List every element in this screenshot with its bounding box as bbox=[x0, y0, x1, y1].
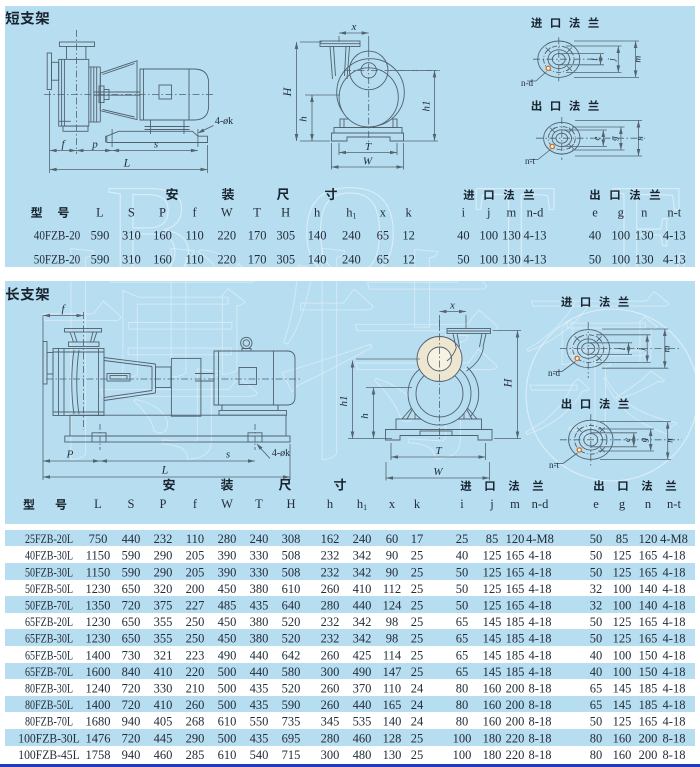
svg-text:50: 50 bbox=[590, 615, 603, 629]
svg-text:120: 120 bbox=[506, 532, 525, 546]
svg-text:P: P bbox=[159, 206, 166, 220]
svg-text:110: 110 bbox=[185, 253, 203, 267]
svg-text:145: 145 bbox=[613, 698, 632, 712]
svg-text:500: 500 bbox=[218, 665, 237, 679]
svg-text:165: 165 bbox=[639, 615, 658, 629]
svg-text:4-18: 4-18 bbox=[663, 665, 686, 679]
svg-text:n-d: n-d bbox=[532, 497, 549, 511]
svg-text:170: 170 bbox=[248, 229, 267, 243]
svg-text:425: 425 bbox=[353, 648, 372, 662]
svg-text:410: 410 bbox=[154, 665, 173, 679]
svg-text:80: 80 bbox=[590, 731, 603, 745]
svg-text:s: s bbox=[154, 139, 158, 151]
svg-text:n-t: n-t bbox=[667, 206, 681, 220]
svg-text:40FZB-20: 40FZB-20 bbox=[34, 229, 81, 243]
svg-text:f: f bbox=[193, 497, 198, 511]
svg-text:380: 380 bbox=[250, 615, 269, 629]
svg-text:50: 50 bbox=[590, 715, 603, 729]
svg-text:940: 940 bbox=[122, 748, 141, 762]
svg-text:210: 210 bbox=[186, 682, 205, 696]
svg-text:W: W bbox=[221, 206, 233, 220]
svg-text:520: 520 bbox=[282, 682, 301, 696]
svg-text:100: 100 bbox=[613, 648, 632, 662]
svg-text:j: j bbox=[636, 347, 646, 351]
svg-text:k: k bbox=[414, 497, 421, 511]
svg-text:S: S bbox=[128, 497, 135, 511]
svg-text:550: 550 bbox=[250, 715, 269, 729]
svg-text:4-18: 4-18 bbox=[529, 648, 552, 662]
svg-text:124: 124 bbox=[383, 599, 403, 613]
svg-text:200: 200 bbox=[639, 748, 658, 762]
svg-text:500: 500 bbox=[218, 682, 237, 696]
svg-text:L: L bbox=[161, 463, 169, 477]
svg-text:940: 940 bbox=[122, 715, 141, 729]
svg-text:4-18: 4-18 bbox=[663, 715, 686, 729]
svg-text:140: 140 bbox=[308, 253, 327, 267]
svg-text:440: 440 bbox=[250, 648, 269, 662]
svg-text:185: 185 bbox=[506, 665, 525, 679]
svg-text:185: 185 bbox=[639, 698, 658, 712]
svg-text:405: 405 bbox=[154, 715, 173, 729]
svg-text:200: 200 bbox=[506, 715, 525, 729]
svg-text:114: 114 bbox=[383, 648, 402, 662]
svg-text:m: m bbox=[507, 206, 517, 220]
svg-text:125: 125 bbox=[613, 549, 632, 563]
svg-text:40: 40 bbox=[590, 648, 603, 662]
svg-text:50: 50 bbox=[456, 582, 469, 596]
svg-text:65FZB-20L: 65FZB-20L bbox=[25, 615, 73, 629]
svg-text:1350: 1350 bbox=[86, 599, 111, 613]
svg-text:f: f bbox=[61, 303, 66, 315]
svg-text:610: 610 bbox=[218, 748, 237, 762]
svg-text:160: 160 bbox=[483, 682, 502, 696]
svg-text:x: x bbox=[389, 497, 396, 511]
svg-text:720: 720 bbox=[122, 698, 141, 712]
svg-text:25: 25 bbox=[411, 665, 424, 679]
svg-text:355: 355 bbox=[154, 615, 173, 629]
svg-text:160: 160 bbox=[483, 698, 502, 712]
svg-text:24: 24 bbox=[411, 715, 424, 729]
svg-text:g: g bbox=[639, 437, 649, 442]
svg-text:240: 240 bbox=[342, 229, 361, 243]
svg-text:280: 280 bbox=[321, 599, 340, 613]
svg-text:65: 65 bbox=[456, 665, 469, 679]
svg-text:130: 130 bbox=[502, 253, 521, 267]
svg-text:25: 25 bbox=[411, 582, 424, 596]
svg-text:1230: 1230 bbox=[86, 615, 111, 629]
svg-text:8-18: 8-18 bbox=[529, 682, 552, 696]
svg-text:x: x bbox=[449, 300, 455, 312]
svg-text:4-18: 4-18 bbox=[663, 615, 686, 629]
svg-text:h: h bbox=[359, 413, 371, 419]
svg-text:200: 200 bbox=[506, 698, 525, 712]
svg-text:695: 695 bbox=[282, 731, 301, 745]
svg-text:17: 17 bbox=[411, 532, 424, 546]
svg-text:260: 260 bbox=[321, 582, 340, 596]
svg-text:320: 320 bbox=[154, 582, 173, 596]
svg-text:330: 330 bbox=[154, 682, 173, 696]
svg-text:440: 440 bbox=[353, 698, 372, 712]
svg-text:p: p bbox=[91, 139, 98, 151]
svg-text:40: 40 bbox=[456, 549, 469, 563]
svg-text:65: 65 bbox=[590, 698, 603, 712]
svg-text:m: m bbox=[510, 497, 520, 511]
svg-text:100: 100 bbox=[613, 665, 632, 679]
svg-text:80FZB-50L: 80FZB-50L bbox=[25, 698, 73, 712]
svg-text:40FZB-30L: 40FZB-30L bbox=[25, 549, 73, 563]
svg-text:145: 145 bbox=[483, 665, 502, 679]
svg-text:650: 650 bbox=[122, 632, 141, 646]
svg-text:1600: 1600 bbox=[86, 665, 111, 679]
svg-text:520: 520 bbox=[282, 615, 301, 629]
svg-text:125: 125 bbox=[483, 599, 502, 613]
svg-text:4-øk: 4-øk bbox=[215, 116, 233, 127]
svg-text:590: 590 bbox=[122, 549, 141, 563]
svg-text:k: k bbox=[405, 206, 412, 220]
svg-text:128: 128 bbox=[383, 731, 402, 745]
svg-text:520: 520 bbox=[282, 632, 301, 646]
svg-text:370: 370 bbox=[353, 682, 372, 696]
svg-text:4-øk: 4-øk bbox=[272, 448, 290, 459]
svg-text:80FZB-70L: 80FZB-70L bbox=[25, 715, 73, 729]
svg-text:375: 375 bbox=[154, 599, 173, 613]
svg-text:65FZB-30L: 65FZB-30L bbox=[25, 632, 73, 646]
svg-text:50: 50 bbox=[590, 565, 603, 579]
svg-text:590: 590 bbox=[282, 698, 301, 712]
svg-text:4-18: 4-18 bbox=[663, 648, 686, 662]
svg-text:285: 285 bbox=[186, 748, 205, 762]
svg-text:W: W bbox=[221, 497, 233, 511]
svg-text:24: 24 bbox=[411, 698, 424, 712]
svg-text:110: 110 bbox=[185, 229, 203, 243]
svg-text:e: e bbox=[622, 438, 632, 442]
svg-text:P: P bbox=[160, 497, 167, 511]
svg-text:32: 32 bbox=[590, 599, 603, 613]
svg-text:450: 450 bbox=[218, 582, 237, 596]
svg-text:227: 227 bbox=[186, 599, 205, 613]
svg-text:450: 450 bbox=[218, 632, 237, 646]
svg-text:145: 145 bbox=[483, 648, 502, 662]
svg-text:1150: 1150 bbox=[86, 565, 111, 579]
svg-text:165: 165 bbox=[506, 582, 525, 596]
svg-text:342: 342 bbox=[353, 632, 372, 646]
svg-text:232: 232 bbox=[321, 632, 340, 646]
svg-text:445: 445 bbox=[154, 731, 173, 745]
svg-text:4-18: 4-18 bbox=[529, 565, 552, 579]
svg-text:170: 170 bbox=[248, 253, 267, 267]
svg-text:h1: h1 bbox=[357, 497, 367, 512]
svg-text:L: L bbox=[96, 206, 104, 220]
svg-text:m: m bbox=[663, 345, 673, 352]
svg-text:L: L bbox=[123, 156, 131, 170]
svg-text:100: 100 bbox=[611, 229, 630, 243]
svg-text:125: 125 bbox=[483, 549, 502, 563]
svg-text:435: 435 bbox=[250, 682, 269, 696]
svg-text:130: 130 bbox=[383, 748, 402, 762]
svg-text:280: 280 bbox=[218, 532, 237, 546]
svg-text:n-d: n-d bbox=[521, 78, 533, 88]
svg-text:165: 165 bbox=[639, 565, 658, 579]
svg-text:180: 180 bbox=[483, 731, 502, 745]
svg-text:T: T bbox=[253, 206, 261, 220]
svg-text:260: 260 bbox=[186, 698, 205, 712]
svg-text:8-18: 8-18 bbox=[529, 748, 552, 762]
svg-text:80: 80 bbox=[456, 682, 469, 696]
svg-text:165: 165 bbox=[506, 599, 525, 613]
svg-text:4-13: 4-13 bbox=[524, 253, 547, 267]
svg-text:140: 140 bbox=[308, 229, 327, 243]
svg-text:4-18: 4-18 bbox=[663, 682, 686, 696]
svg-text:410: 410 bbox=[353, 582, 372, 596]
svg-text:642: 642 bbox=[282, 648, 301, 662]
svg-text:125: 125 bbox=[613, 615, 632, 629]
svg-text:4-18: 4-18 bbox=[663, 698, 686, 712]
svg-text:300: 300 bbox=[321, 748, 340, 762]
svg-text:112: 112 bbox=[383, 582, 401, 596]
svg-text:125: 125 bbox=[483, 565, 502, 579]
svg-text:80: 80 bbox=[456, 715, 469, 729]
svg-text:355: 355 bbox=[154, 632, 173, 646]
svg-text:4-18: 4-18 bbox=[529, 632, 552, 646]
svg-text:h: h bbox=[298, 116, 310, 122]
svg-text:80: 80 bbox=[456, 698, 469, 712]
svg-text:50: 50 bbox=[590, 549, 603, 563]
svg-text:165: 165 bbox=[506, 549, 525, 563]
svg-text:125: 125 bbox=[613, 715, 632, 729]
svg-text:50: 50 bbox=[456, 565, 469, 579]
svg-text:i: i bbox=[460, 497, 464, 511]
svg-text:310: 310 bbox=[122, 253, 141, 267]
svg-text:40: 40 bbox=[457, 229, 470, 243]
svg-text:840: 840 bbox=[122, 665, 141, 679]
svg-text:435: 435 bbox=[250, 599, 269, 613]
svg-text:j: j bbox=[607, 58, 617, 62]
svg-text:240: 240 bbox=[342, 253, 361, 267]
svg-text:240: 240 bbox=[250, 532, 269, 546]
svg-text:e: e bbox=[592, 137, 602, 141]
svg-text:1240: 1240 bbox=[86, 682, 111, 696]
svg-text:185: 185 bbox=[506, 648, 525, 662]
svg-text:40: 40 bbox=[589, 229, 602, 243]
svg-text:110: 110 bbox=[186, 532, 204, 546]
svg-text:160: 160 bbox=[153, 253, 172, 267]
svg-text:98: 98 bbox=[386, 615, 399, 629]
svg-text:330: 330 bbox=[250, 549, 269, 563]
svg-text:300: 300 bbox=[321, 665, 340, 679]
svg-text:x: x bbox=[351, 21, 357, 33]
svg-text:735: 735 bbox=[282, 715, 301, 729]
svg-text:390: 390 bbox=[218, 549, 237, 563]
svg-text:147: 147 bbox=[383, 665, 402, 679]
svg-text:250: 250 bbox=[186, 632, 205, 646]
svg-text:h: h bbox=[314, 206, 321, 220]
svg-text:305: 305 bbox=[276, 229, 295, 243]
svg-text:125: 125 bbox=[613, 632, 632, 646]
svg-text:50FZB-30L: 50FZB-30L bbox=[25, 565, 73, 579]
svg-text:n-t: n-t bbox=[667, 497, 681, 511]
svg-text:100: 100 bbox=[453, 731, 472, 745]
svg-text:n-t: n-t bbox=[549, 460, 559, 470]
svg-text:540: 540 bbox=[250, 748, 269, 762]
svg-text:n: n bbox=[641, 206, 648, 220]
svg-text:n-d: n-d bbox=[548, 368, 560, 378]
svg-text:640: 640 bbox=[282, 599, 301, 613]
svg-text:25: 25 bbox=[411, 565, 424, 579]
svg-text:440: 440 bbox=[353, 599, 372, 613]
svg-text:150: 150 bbox=[639, 665, 658, 679]
svg-text:100: 100 bbox=[479, 229, 498, 243]
svg-text:260: 260 bbox=[321, 698, 340, 712]
svg-text:240: 240 bbox=[353, 532, 372, 546]
svg-text:i: i bbox=[617, 347, 627, 350]
svg-text:440: 440 bbox=[250, 665, 269, 679]
svg-text:x: x bbox=[380, 206, 387, 220]
svg-text:4-13: 4-13 bbox=[524, 229, 547, 243]
svg-text:145: 145 bbox=[483, 615, 502, 629]
svg-text:85: 85 bbox=[486, 532, 499, 546]
svg-text:65: 65 bbox=[456, 648, 469, 662]
svg-text:200: 200 bbox=[506, 682, 525, 696]
svg-text:185: 185 bbox=[506, 632, 525, 646]
svg-text:L: L bbox=[94, 497, 102, 511]
svg-text:12: 12 bbox=[402, 253, 415, 267]
svg-text:305: 305 bbox=[276, 253, 295, 267]
svg-text:65: 65 bbox=[456, 615, 469, 629]
svg-text:130: 130 bbox=[635, 229, 654, 243]
svg-text:345: 345 bbox=[321, 715, 340, 729]
svg-text:140: 140 bbox=[383, 715, 402, 729]
svg-text:223: 223 bbox=[186, 648, 205, 662]
svg-text:100FZB-45L: 100FZB-45L bbox=[18, 748, 80, 762]
svg-text:480: 480 bbox=[353, 748, 372, 762]
svg-text:4-18: 4-18 bbox=[529, 599, 552, 613]
svg-text:220: 220 bbox=[217, 253, 236, 267]
svg-text:130: 130 bbox=[502, 229, 521, 243]
svg-text:590: 590 bbox=[122, 565, 141, 579]
svg-text:165: 165 bbox=[639, 632, 658, 646]
svg-text:65: 65 bbox=[456, 632, 469, 646]
svg-text:100: 100 bbox=[611, 253, 630, 267]
svg-text:205: 205 bbox=[186, 565, 205, 579]
svg-text:232: 232 bbox=[321, 615, 340, 629]
svg-text:720: 720 bbox=[122, 731, 141, 745]
svg-text:65: 65 bbox=[590, 682, 603, 696]
svg-text:220: 220 bbox=[217, 229, 236, 243]
svg-text:T: T bbox=[435, 445, 442, 457]
svg-text:200: 200 bbox=[639, 731, 658, 745]
svg-text:H: H bbox=[280, 86, 294, 97]
svg-text:85: 85 bbox=[616, 532, 629, 546]
svg-text:165: 165 bbox=[639, 549, 658, 563]
svg-text:1230: 1230 bbox=[86, 632, 111, 646]
svg-text:290: 290 bbox=[154, 549, 173, 563]
svg-text:j: j bbox=[486, 206, 490, 220]
svg-text:162: 162 bbox=[321, 532, 340, 546]
svg-text:40: 40 bbox=[590, 665, 603, 679]
svg-text:485: 485 bbox=[218, 599, 237, 613]
svg-text:342: 342 bbox=[353, 565, 372, 579]
svg-text:j: j bbox=[489, 497, 493, 511]
svg-text:60: 60 bbox=[386, 532, 399, 546]
svg-text:321: 321 bbox=[154, 648, 173, 662]
svg-text:435: 435 bbox=[250, 731, 269, 745]
svg-text:T: T bbox=[365, 141, 372, 153]
svg-text:80: 80 bbox=[590, 748, 603, 762]
svg-text:200: 200 bbox=[186, 582, 205, 596]
svg-text:H: H bbox=[281, 206, 290, 220]
svg-text:8-18: 8-18 bbox=[663, 748, 686, 762]
svg-text:232: 232 bbox=[321, 565, 340, 579]
svg-text:50FZB-20: 50FZB-20 bbox=[34, 253, 81, 267]
svg-text:580: 580 bbox=[282, 665, 301, 679]
svg-text:220: 220 bbox=[506, 731, 525, 745]
svg-text:1680: 1680 bbox=[86, 715, 111, 729]
svg-text:g: g bbox=[618, 206, 625, 220]
svg-text:H: H bbox=[501, 377, 515, 388]
svg-text:450: 450 bbox=[218, 615, 237, 629]
svg-text:m: m bbox=[634, 56, 644, 63]
svg-text:715: 715 bbox=[282, 748, 301, 762]
svg-text:160: 160 bbox=[483, 715, 502, 729]
svg-text:100: 100 bbox=[613, 599, 632, 613]
svg-text:720: 720 bbox=[122, 599, 141, 613]
svg-text:W: W bbox=[433, 466, 443, 478]
svg-text:65: 65 bbox=[377, 229, 390, 243]
svg-text:8-18: 8-18 bbox=[529, 698, 552, 712]
svg-text:65FZB-50L: 65FZB-50L bbox=[25, 648, 73, 662]
svg-text:4-M8: 4-M8 bbox=[660, 532, 688, 546]
svg-text:1230: 1230 bbox=[86, 582, 111, 596]
svg-text:232: 232 bbox=[321, 549, 340, 563]
svg-text:25: 25 bbox=[411, 615, 424, 629]
svg-text:n: n bbox=[665, 438, 675, 443]
svg-text:390: 390 bbox=[218, 565, 237, 579]
svg-text:185: 185 bbox=[639, 682, 658, 696]
svg-text:24: 24 bbox=[411, 682, 424, 696]
svg-text:4-18: 4-18 bbox=[529, 549, 552, 563]
svg-text:H: H bbox=[286, 497, 295, 511]
svg-text:165: 165 bbox=[639, 715, 658, 729]
svg-text:n-t: n-t bbox=[525, 156, 535, 166]
svg-text:440: 440 bbox=[122, 532, 141, 546]
svg-text:220: 220 bbox=[506, 748, 525, 762]
svg-text:n-d: n-d bbox=[527, 206, 544, 220]
svg-text:65: 65 bbox=[377, 253, 390, 267]
svg-text:50: 50 bbox=[590, 632, 603, 646]
svg-text:W: W bbox=[363, 156, 373, 168]
svg-text:180: 180 bbox=[483, 748, 502, 762]
svg-text:535: 535 bbox=[353, 715, 372, 729]
svg-text:160: 160 bbox=[613, 748, 632, 762]
svg-text:4-M8: 4-M8 bbox=[526, 532, 554, 546]
svg-text:500: 500 bbox=[218, 698, 237, 712]
svg-text:310: 310 bbox=[122, 229, 141, 243]
svg-text:h1: h1 bbox=[338, 396, 350, 407]
svg-text:160: 160 bbox=[613, 731, 632, 745]
svg-text:25: 25 bbox=[411, 731, 424, 745]
svg-text:80FZB-30L: 80FZB-30L bbox=[25, 682, 73, 696]
svg-text:h: h bbox=[327, 497, 334, 511]
svg-text:4-18: 4-18 bbox=[663, 565, 686, 579]
svg-text:90: 90 bbox=[386, 549, 399, 563]
svg-text:4-18: 4-18 bbox=[663, 549, 686, 563]
svg-text:508: 508 bbox=[282, 565, 301, 579]
svg-text:100FZB-30L: 100FZB-30L bbox=[18, 731, 80, 745]
svg-text:T: T bbox=[255, 497, 263, 511]
svg-text:205: 205 bbox=[186, 549, 205, 563]
svg-text:130: 130 bbox=[635, 253, 654, 267]
svg-text:1476: 1476 bbox=[86, 731, 111, 745]
